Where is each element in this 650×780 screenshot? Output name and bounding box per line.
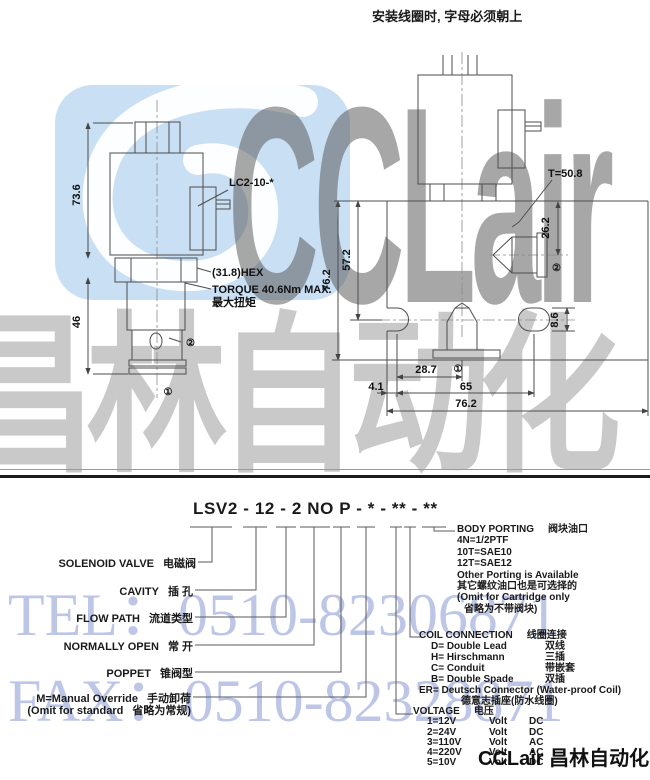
right-view-drawing (332, 52, 648, 416)
coil-body (110, 153, 203, 255)
datasheet-page: CCLair 昌林自动化 TEL：0510-82306871 FAX：0510-… (0, 0, 650, 780)
label-normally-open: NORMALLY OPEN常 开 (64, 638, 193, 654)
install-note: 安装线圈时, 字母必须朝上 (372, 6, 522, 25)
option-text: D= Double Lead (431, 641, 507, 652)
label-en: CAVITY (119, 586, 159, 598)
dim-57-2: 57.2 (341, 249, 353, 270)
option-text: H= Hirschmann (431, 652, 505, 663)
label-cn: 电磁阀 (163, 558, 196, 570)
label-en: SOLENOID VALVE (58, 558, 154, 570)
body-porting-block: BODY PORTING阀块油口 4N=1/2PTF 10T=SAE10 12T… (457, 524, 588, 615)
divider-line-thin (0, 469, 650, 470)
port2-mark: ② (186, 338, 195, 349)
option-cn: 双线 (545, 641, 565, 652)
option-cn: 双插 (545, 674, 565, 685)
label-en: NORMALLY OPEN (64, 641, 159, 653)
label-cn: 常 开 (168, 641, 193, 653)
body-porting-line: 其它螺纹油口也是可选择的 (457, 581, 588, 592)
body-porting-line: 4N=1/2PTF (457, 535, 588, 546)
dim-76-2-horizontal: 76.2 (455, 398, 476, 410)
coil-connection-title: COIL CONNECTION线圈连接 (419, 630, 621, 641)
label-cavity: CAVITY插 孔 (119, 583, 193, 599)
coil-option: D= Double Lead双线 (419, 641, 621, 652)
body-porting-line: Other Porting is Available (457, 570, 588, 581)
body-porting-line: 12T=SAE12 (457, 558, 588, 569)
t-torque-label: T=50.8 (548, 168, 583, 180)
option-cn: 带嵌套 (545, 663, 575, 674)
label-en: (Omit for standard (27, 705, 123, 717)
dim-4-1: 4.1 (368, 381, 383, 393)
coil-option-er: ER= Deutsch Connector (Water-proof Coil) (419, 685, 621, 696)
torque-cn-label: 最大扭矩 (212, 295, 256, 309)
option-text: C= Conduit (431, 663, 485, 674)
cartridge-upper (127, 282, 185, 330)
port-hole (150, 333, 162, 349)
coil-option: B= Double Spade双插 (419, 674, 621, 685)
option-text: B= Double Spade (431, 674, 514, 685)
port2-mark-right: ② (552, 263, 561, 274)
left-view-drawing (88, 100, 230, 398)
label-cn: 插 孔 (168, 586, 193, 598)
dim-76-2-vertical: 76.2 (321, 269, 333, 290)
dim-46: 46 (71, 316, 83, 328)
model-code: LSV2 - 12 - 2 NO P - * - ** - ** (193, 499, 438, 519)
port1-mark: ① (164, 387, 173, 398)
dim-8-6: 8.6 (549, 312, 561, 327)
footer-brand: CCLair 昌林自动化 (478, 742, 649, 771)
label-cn: 流道类型 (149, 613, 193, 625)
technical-drawings: LC2-10-* (31.8)HEX TORQUE 40.6Nm MAX. 最大… (0, 0, 650, 470)
body-porting-line: 省略为不带阀块) (457, 604, 588, 615)
hex-label: (31.8)HEX (212, 267, 264, 279)
title-cn: 线圈连接 (527, 630, 567, 641)
coil-model-label: LC2-10-* (229, 177, 274, 189)
dim-73-6: 73.6 (71, 184, 83, 205)
label-omit-standard: (Omit for standard省略为常规) (27, 702, 191, 718)
coil-option: H= Hirschmann三插 (419, 652, 621, 663)
label-en: FLOW PATH (76, 613, 140, 625)
divider-line-thick (0, 475, 650, 478)
body-porting-title: BODY PORTING阀块油口 (457, 524, 588, 535)
label-flow-path: FLOW PATH流道类型 (76, 610, 193, 626)
label-cn: 省略为常规) (132, 705, 191, 717)
body-porting-line: (Omit for Cartridge only (457, 592, 588, 603)
label-cn: 锥阀型 (160, 668, 193, 680)
option-cn: 三插 (545, 652, 565, 663)
dim-26-2: 26.2 (540, 217, 552, 238)
title-en: COIL CONNECTION (419, 630, 513, 641)
label-solenoid-valve: SOLENOID VALVE电磁阀 (58, 555, 196, 571)
hex-nut (115, 258, 197, 282)
coil-connection-block: COIL CONNECTION线圈连接 D= Double Lead双线 H= … (419, 630, 621, 707)
port1-mark-right: ① (454, 364, 463, 375)
title-en: BODY PORTING (457, 524, 534, 535)
dim-65: 65 (460, 381, 472, 393)
volt-code: 5=10V (427, 757, 456, 768)
torque-label: TORQUE 40.6Nm MAX. (212, 284, 332, 296)
label-en: POPPET (106, 668, 151, 680)
coil-option: C= Conduit带嵌套 (419, 663, 621, 674)
label-poppet: POPPET锥阀型 (106, 665, 193, 681)
dim-28-7: 28.7 (415, 364, 436, 376)
title-cn: 阀块油口 (548, 524, 588, 535)
body-porting-line: 10T=SAE10 (457, 547, 588, 558)
